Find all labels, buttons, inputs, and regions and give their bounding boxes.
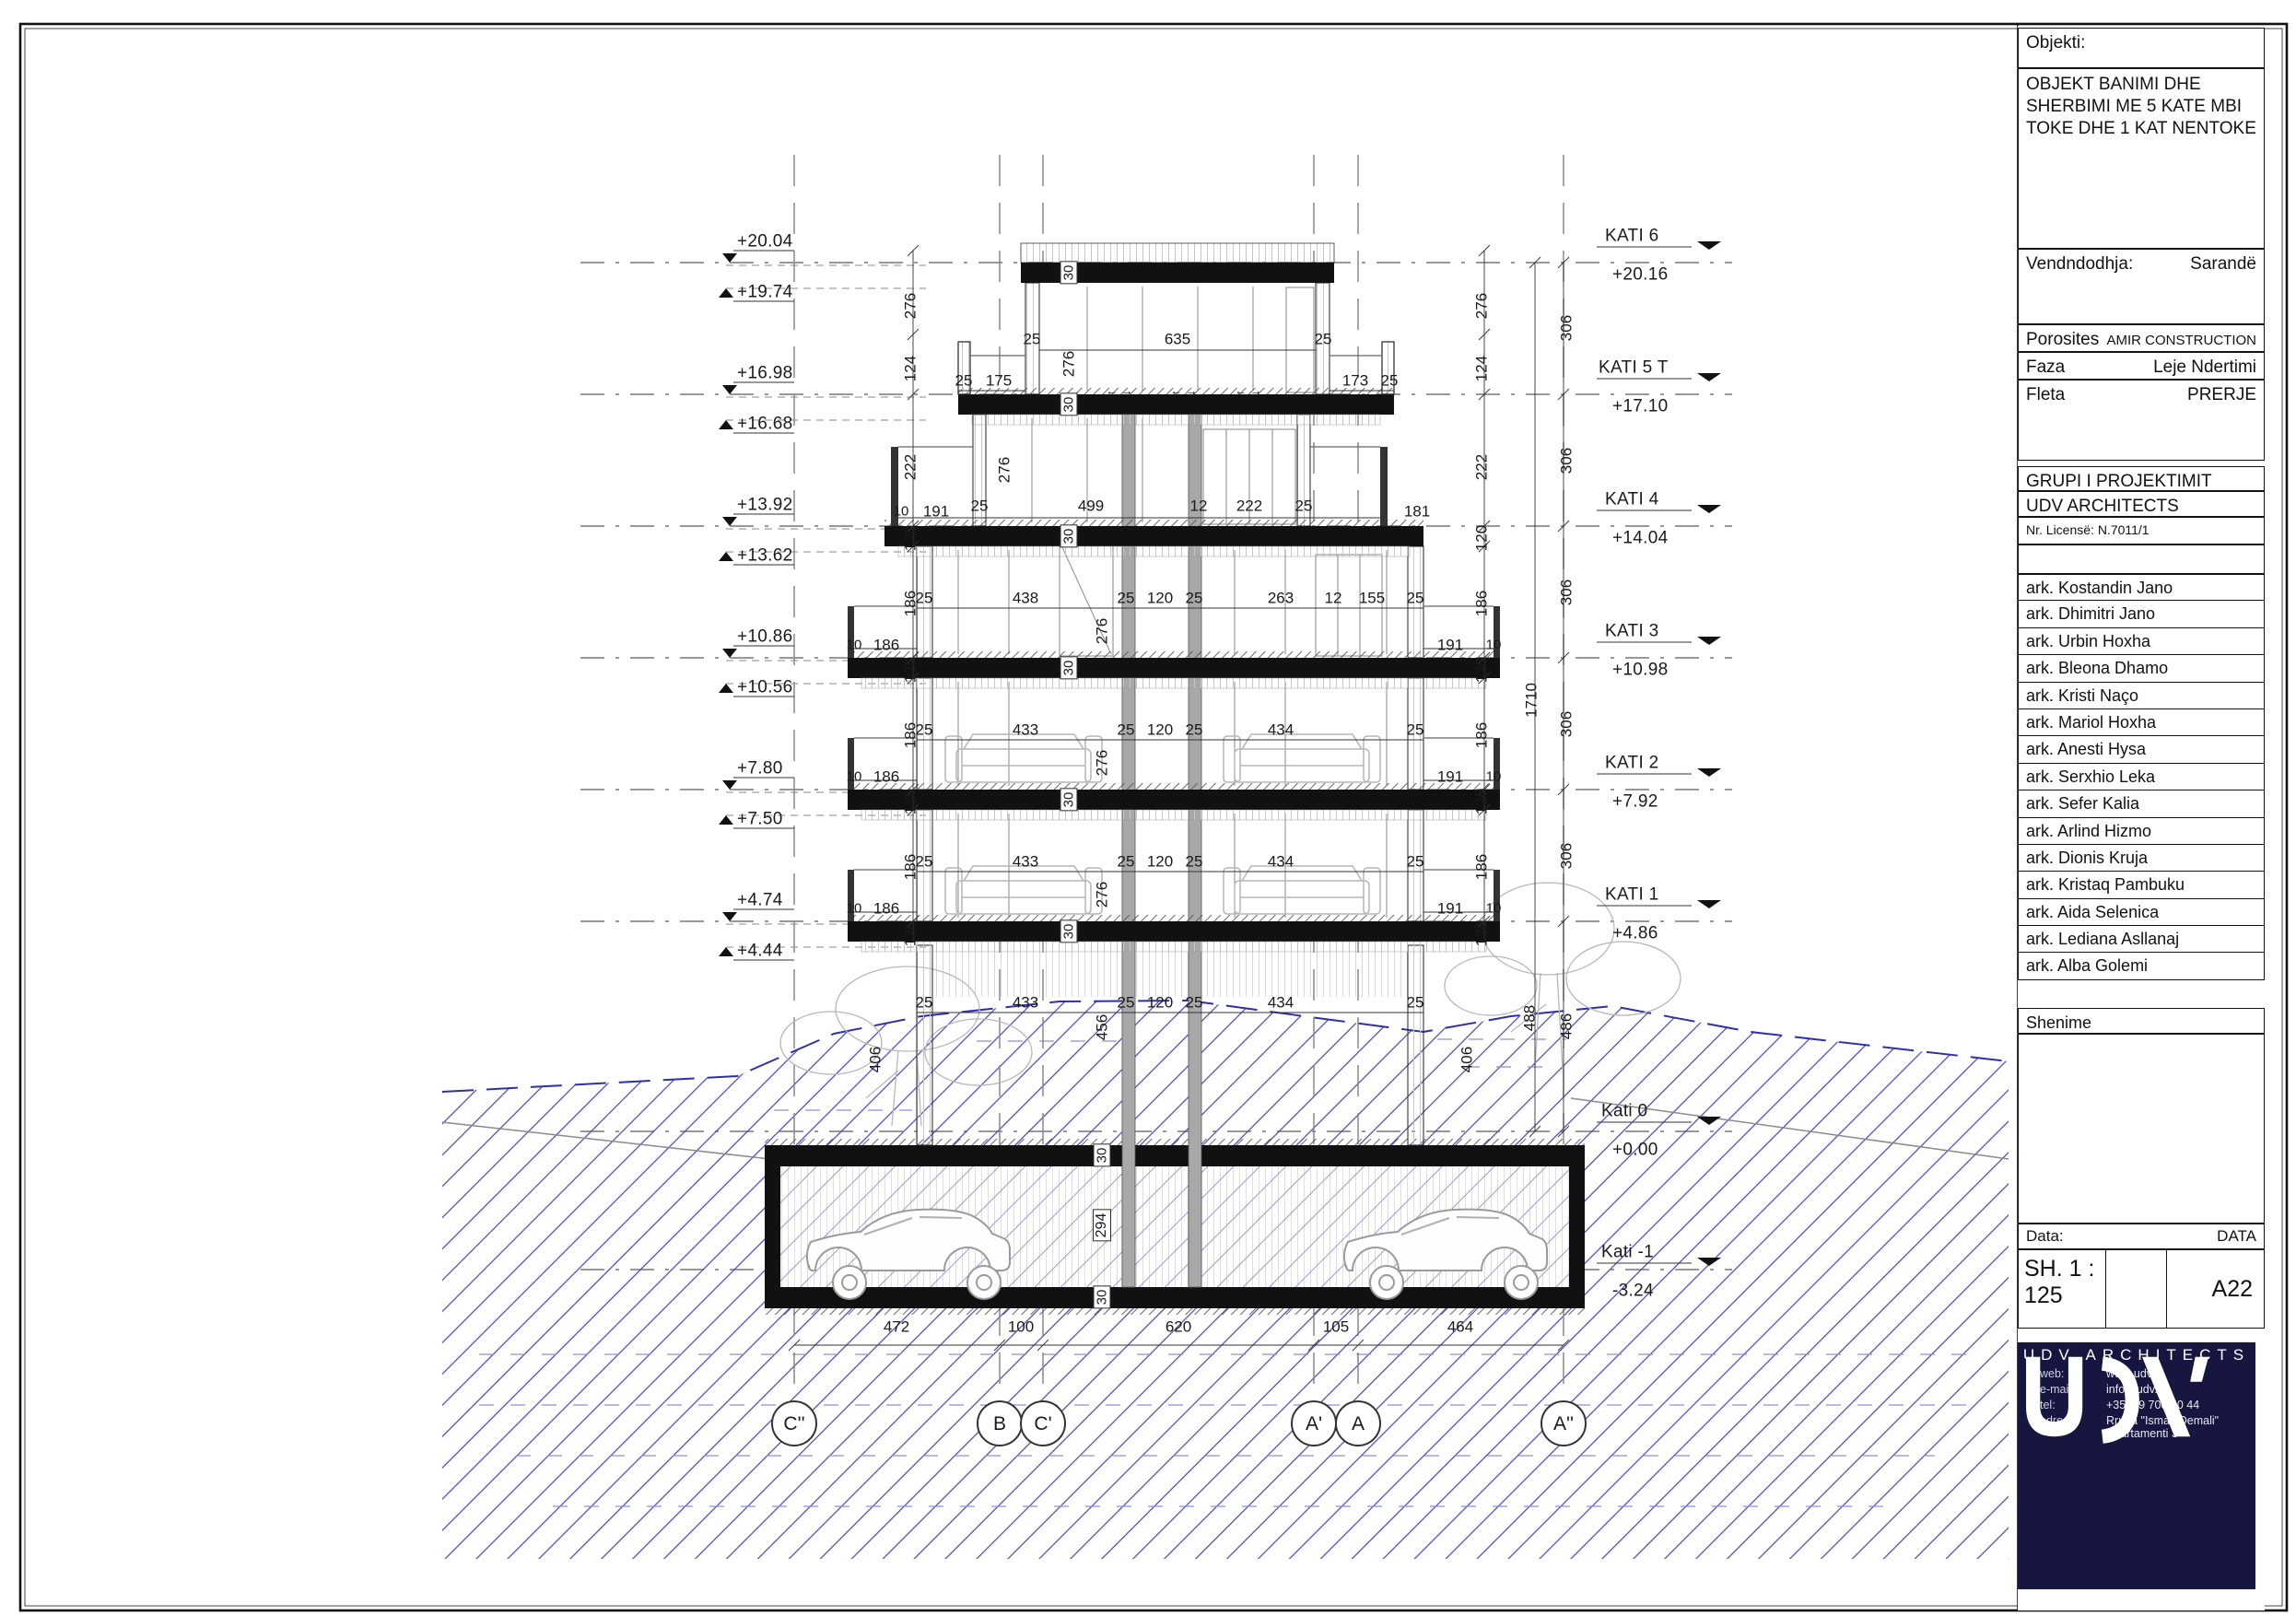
udv-logo-glyph <box>2018 1355 2217 1446</box>
architect-row: ark. Kristaq Pambuku <box>2018 872 2265 898</box>
architect-row: ark. Sefer Kalia <box>2018 790 2265 817</box>
porosites-label: Porosites <box>2026 330 2099 350</box>
architect-row: ark. Arlind Hizmo <box>2018 818 2265 845</box>
fleta-box: Fleta PRERJE <box>2018 380 2265 461</box>
porosites-box: Porosites AMIR CONSTRUCTION <box>2018 324 2265 352</box>
grupi-label: GRUPI I PROJEKTIMIT <box>2026 472 2212 491</box>
fleta-value: PRERJE <box>2187 385 2256 405</box>
architect-row: ark. Lediana Asllanaj <box>2018 926 2265 953</box>
studio-box: UDV ARCHITECTS <box>2018 491 2265 517</box>
license-number: Nr. Licensë: N.7011/1 <box>2026 522 2150 537</box>
title-block: Objekti: OBJEKT BANIMI DHE SHERBIMI ME 5… <box>2018 26 2265 1610</box>
architect-row: ark. Dhimitri Jano <box>2018 601 2265 627</box>
empty-box <box>2018 545 2265 574</box>
architect-row: ark. Alba Golemi <box>2018 953 2265 979</box>
faza-value: Leje Ndertimi <box>2153 357 2256 378</box>
sheet-code: A22 <box>2167 1250 2262 1328</box>
grupi-box: GRUPI I PROJEKTIMIT <box>2018 466 2265 491</box>
architect-row: ark. Bleona Dhamo <box>2018 655 2265 682</box>
scale-empty-cell <box>2106 1250 2167 1328</box>
architect-row: ark. Urbin Hoxha <box>2018 628 2265 655</box>
architect-row: ark. Mariol Hoxha <box>2018 709 2265 736</box>
vendndodhja-value: Sarandë <box>2190 254 2256 275</box>
architect-row: ark. Dionis Kruja <box>2018 845 2265 872</box>
shenime-label: Shenime <box>2026 1013 2091 1032</box>
shenime-box: Shenime <box>2018 1008 2265 1034</box>
objekti-label: Objekti: <box>2026 33 2085 53</box>
udv-logo: UDV ARCHITECTS web:www.udv.al e-mail:inf… <box>2018 1342 2255 1589</box>
data-label: Data: <box>2026 1227 2064 1246</box>
vendndodhja-box: Vendndodhja: Sarandë <box>2018 249 2265 324</box>
drawing-sheet: +20.04+19.74+16.98+16.68+13.92+13.62+10.… <box>0 0 2296 1616</box>
architect-row: ark. Serxhio Leka <box>2018 764 2265 790</box>
section-drawing <box>0 0 2296 1616</box>
shenime-content-box <box>2018 1034 2265 1224</box>
basement-garage <box>765 1139 1585 1315</box>
architect-row: ark. Kostandin Jano <box>2018 574 2265 601</box>
scale-box: SH. 1 : 125 A22 <box>2018 1249 2265 1329</box>
faza-label: Faza <box>2026 357 2065 378</box>
faza-box: Faza Leje Ndertimi <box>2018 352 2265 380</box>
architect-row: ark. Kristi Naço <box>2018 683 2265 709</box>
studio-name: UDV ARCHITECTS <box>2026 497 2179 516</box>
fleta-label: Fleta <box>2026 385 2065 405</box>
objekti-box: Objekti: <box>2018 28 2265 68</box>
architect-row: ark. Aida Selenica <box>2018 899 2265 926</box>
architect-row: ark. Anesti Hysa <box>2018 736 2265 763</box>
scale-value: SH. 1 : 125 <box>2019 1250 2106 1328</box>
architects-list: ark. Kostandin Janoark. Dhimitri Janoark… <box>2018 574 2265 980</box>
data-box: Data: DATA <box>2018 1224 2265 1249</box>
porosites-value: AMIR CONSTRUCTION <box>2107 333 2257 348</box>
license-box: Nr. Licensë: N.7011/1 <box>2018 517 2265 545</box>
data-value: DATA <box>2217 1227 2256 1246</box>
vendndodhja-label: Vendndodhja: <box>2026 254 2133 275</box>
elevation-markers <box>719 251 794 960</box>
project-title: OBJEKT BANIMI DHE SHERBIMI ME 5 KATE MBI… <box>2026 75 2256 138</box>
project-title-box: OBJEKT BANIMI DHE SHERBIMI ME 5 KATE MBI… <box>2018 68 2265 249</box>
